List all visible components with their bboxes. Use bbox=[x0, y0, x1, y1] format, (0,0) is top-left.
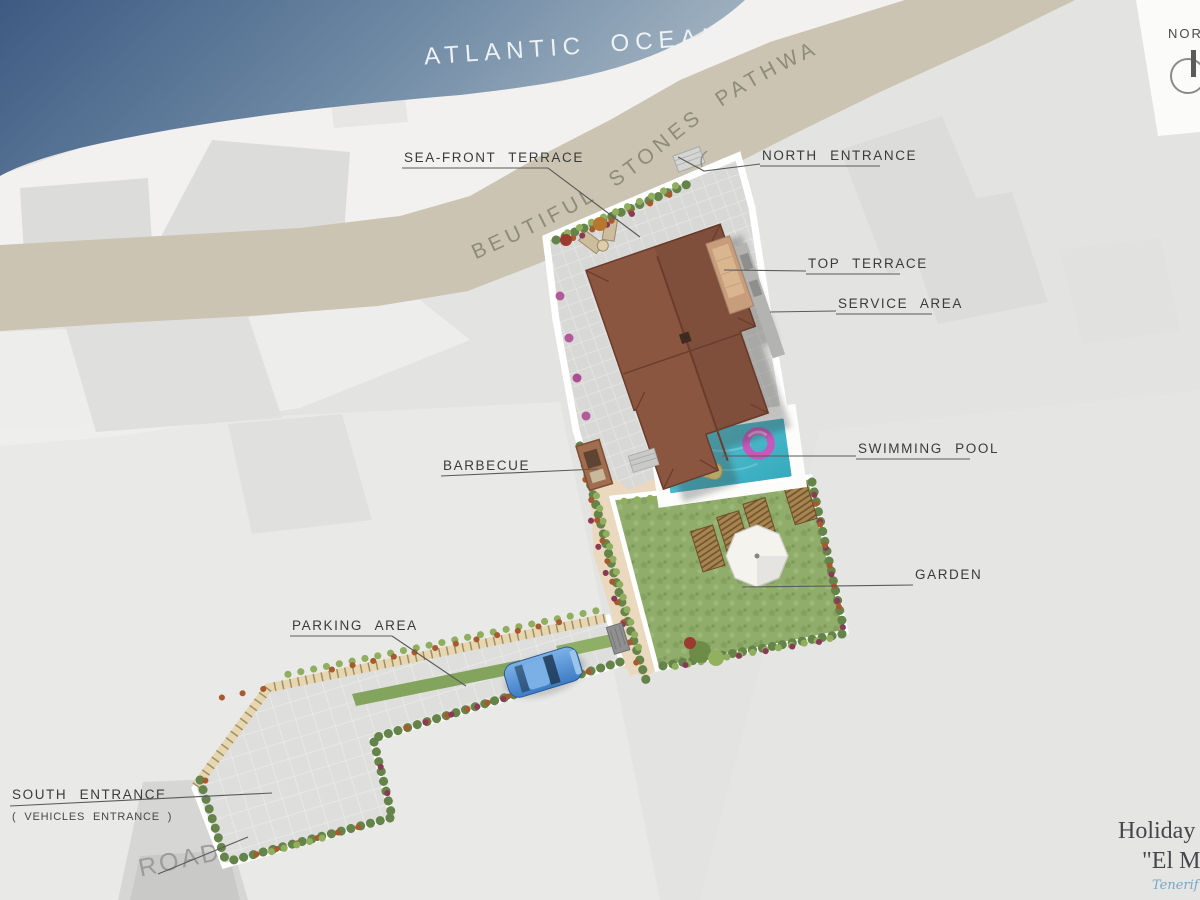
label-barbecue: BARBECUE bbox=[443, 458, 530, 473]
label-sea-front-terrace: SEA-FRONT TERRACE bbox=[404, 150, 584, 165]
label-garden: GARDEN bbox=[915, 567, 982, 582]
label-service-area: SERVICE AREA bbox=[838, 296, 963, 311]
label-swimming-pool: SWIMMING POOL bbox=[858, 441, 999, 456]
label-parking-area: PARKING AREA bbox=[292, 618, 418, 633]
title-line1: Holiday H bbox=[1118, 818, 1200, 844]
compass-needle bbox=[1191, 50, 1196, 77]
label-top-terrace: TOP TERRACE bbox=[808, 256, 928, 271]
label-south-entrance-note: ( VEHICLES ENTRANCE ) bbox=[12, 811, 172, 823]
title-line2: "El Ma bbox=[1142, 848, 1200, 874]
site-plan-canvas: ATLANTIC OCEAN BEUTIFUL STONES PATHWAY R… bbox=[0, 0, 1200, 900]
title-line3: Tenerif bbox=[1152, 878, 1200, 893]
label-north-entrance: NORTH ENTRANCE bbox=[762, 148, 917, 163]
garden bbox=[612, 477, 846, 669]
site-plan-page: ATLANTIC OCEAN BEUTIFUL STONES PATHWAY R… bbox=[0, 0, 1200, 900]
compass-label: NORTH bbox=[1168, 26, 1200, 41]
garden-parasol bbox=[726, 525, 788, 587]
